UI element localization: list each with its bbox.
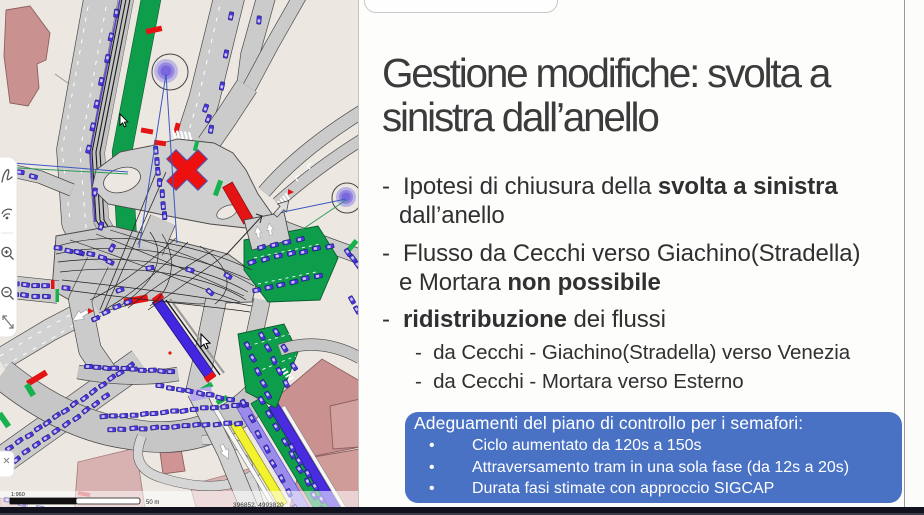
svg-text:1:960: 1:960 bbox=[11, 492, 25, 498]
svg-text:50 m: 50 m bbox=[146, 500, 159, 506]
